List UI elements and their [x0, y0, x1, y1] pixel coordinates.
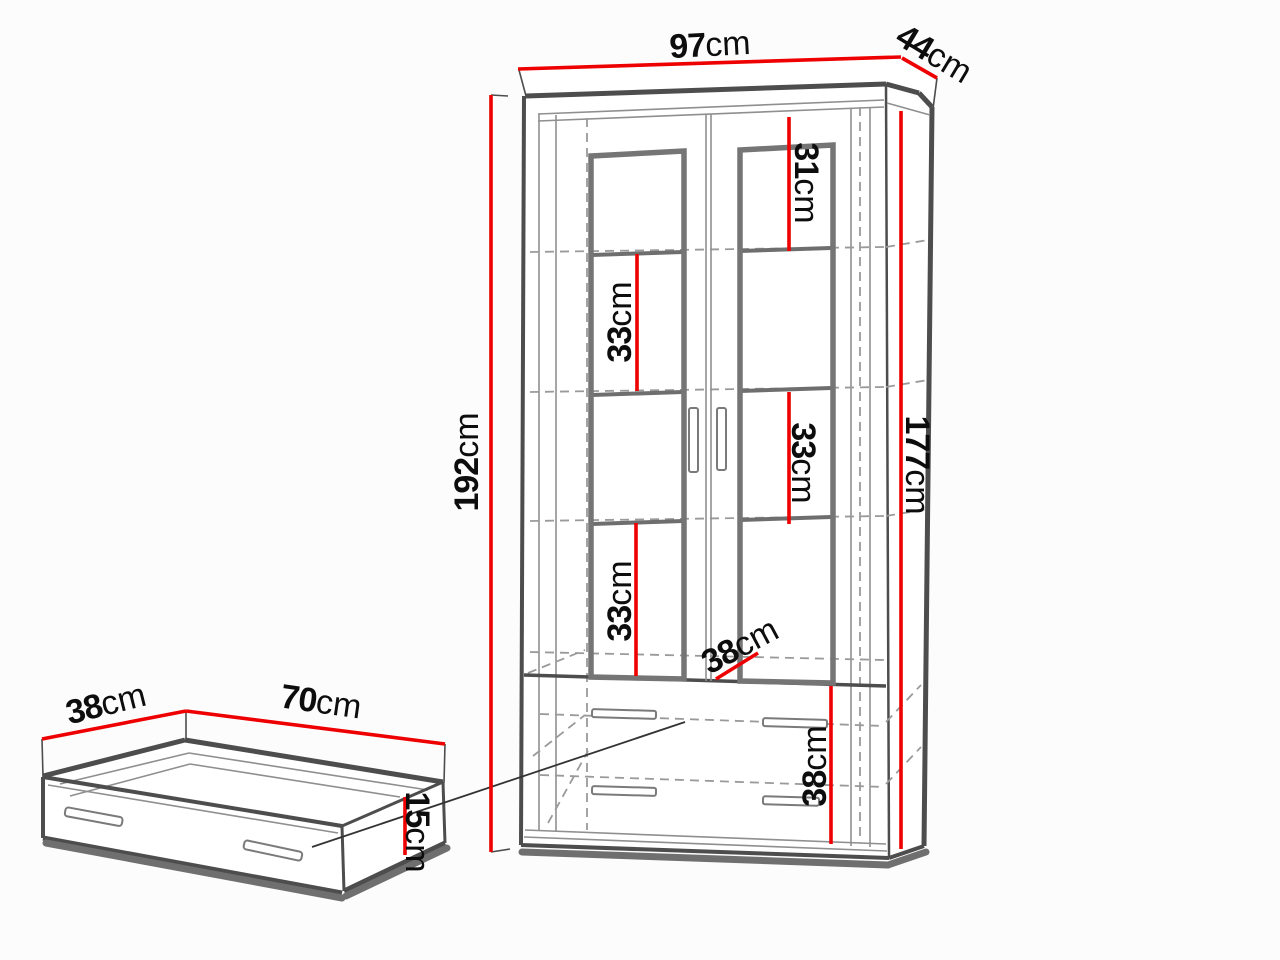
cabinet [519, 57, 936, 865]
label-cabinet-height: 192cm [448, 412, 486, 511]
label-top-compartment: 31cm [787, 142, 825, 223]
label-drawer-depth: 38cm [62, 676, 150, 733]
label-drawer-section-height: 38cm [796, 725, 834, 806]
witness-line [491, 849, 510, 852]
dimension-diagram: 97cm 44cm 192cm 177cm 31cm 33cm 33cm 33c… [0, 0, 1280, 960]
drawer-side-back-edge [443, 782, 445, 843]
drawer-box [43, 740, 447, 898]
label-compartment-right-middle: 33cm [784, 422, 822, 503]
witness-line [444, 744, 445, 783]
label-drawer-width: 70cm [278, 678, 364, 727]
witness-line [42, 739, 43, 777]
witness-line [491, 95, 508, 96]
label-drawer-height: 15cm [398, 791, 436, 872]
label-compartment-left-upper: 33cm [601, 281, 639, 362]
label-compartment-left-lower: 33cm [601, 560, 639, 641]
label-front-height: 177cm [898, 415, 936, 514]
label-cabinet-width: 97cm [668, 24, 751, 66]
cabinet-drawer-handle [592, 786, 656, 796]
door-handle-left [689, 408, 698, 472]
door-handle-right [717, 408, 726, 470]
cabinet-drawer-handle [592, 709, 656, 719]
